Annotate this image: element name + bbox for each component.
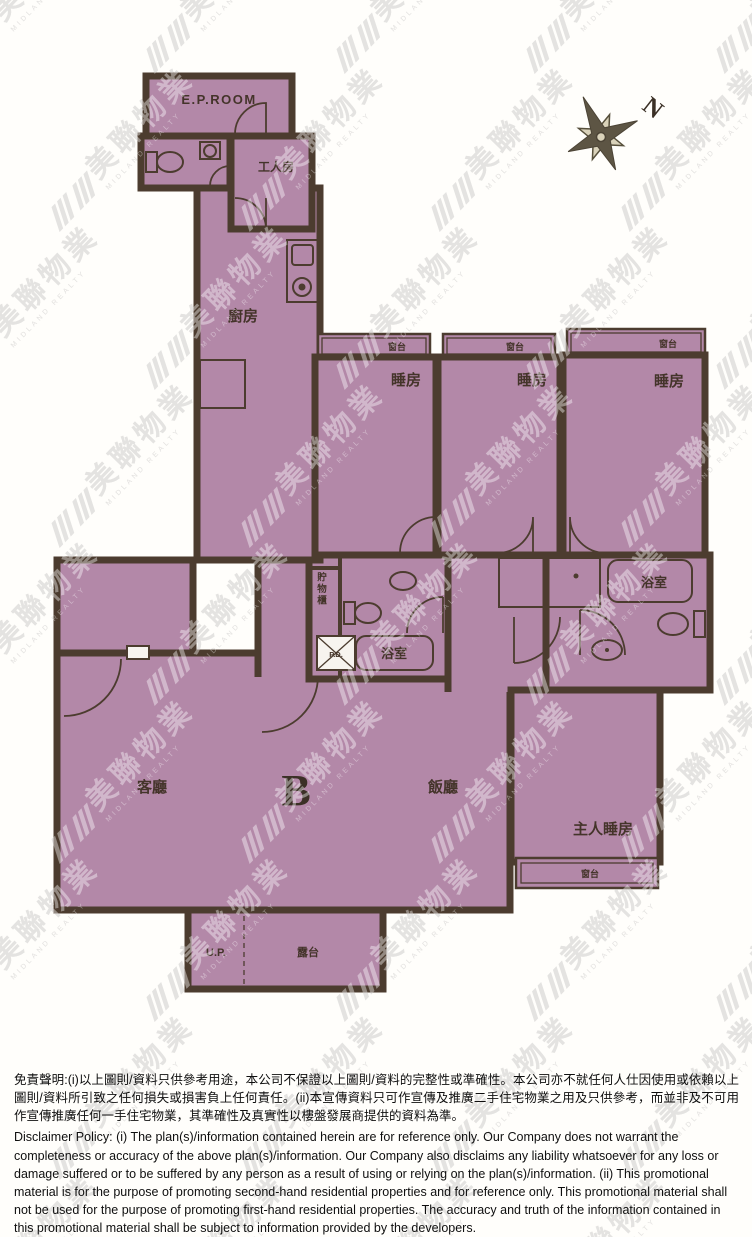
label-storage: 貯物櫃	[313, 572, 327, 607]
room-bedroom-3	[563, 329, 705, 555]
label-balcony: 露台	[297, 945, 319, 959]
label-maid-room: 工人房	[258, 159, 294, 174]
compass-north-label: N	[637, 92, 668, 124]
label-bay-window-3: 窗台	[659, 338, 677, 349]
room-bedroom-2	[438, 334, 560, 555]
room-bathroom-2	[546, 555, 710, 690]
room-toilet-small	[141, 136, 230, 188]
label-bay-window-master: 窗台	[581, 868, 599, 879]
label-bay-window-1: 窗台	[388, 341, 406, 352]
room-hallway	[448, 555, 546, 692]
watermark-text-zh: 美聯物業	[746, 1169, 752, 1237]
floor-plan-drawing: N E.P.ROOM 工人房 廚房 睡房 睡房 睡房 窗台 窗台 窗台 窗台 浴…	[0, 0, 752, 1060]
label-bedroom-1: 睡房	[391, 371, 421, 389]
label-kitchen: 廚房	[228, 307, 258, 325]
label-bathroom-2: 浴室	[641, 575, 667, 590]
label-living-room: 客廳	[136, 778, 167, 796]
compass-icon: N	[550, 81, 668, 185]
label-bedroom-3: 睡房	[654, 372, 684, 390]
watermark-text-zh: 美聯物業	[746, 1169, 752, 1237]
floor-plan-page: 美聯物業MIDLAND REALTY美聯物業MIDLAND REALTY美聯物業…	[0, 0, 752, 1237]
room-maid	[231, 136, 312, 229]
label-master-bedroom: 主人睡房	[573, 820, 633, 838]
room-kitchen	[197, 188, 320, 560]
wall-step	[127, 646, 149, 659]
label-dining-room: 飯廳	[427, 778, 458, 796]
disclaimer-block: 免責聲明:(i)以上圖則/資料只供參考用途，本公司不保證以上圖則/資料的完整性或…	[14, 1071, 739, 1237]
label-bathroom-1: 浴室	[381, 646, 407, 661]
label-bay-window-2: 窗台	[506, 341, 524, 352]
label-unit: B	[281, 766, 310, 815]
disclaimer-chinese: 免責聲明:(i)以上圖則/資料只供參考用途，本公司不保證以上圖則/資料的完整性或…	[14, 1071, 739, 1125]
room-master-bedroom	[511, 690, 660, 888]
label-utility-platform: U.P.	[206, 947, 226, 959]
disclaimer-english: Disclaimer Policy: (i) The plan(s)/infor…	[14, 1128, 739, 1237]
label-pipe-duct: P.D.	[329, 650, 343, 659]
room-foyer	[57, 560, 193, 659]
label-ep-room: E.P.ROOM	[181, 92, 256, 107]
label-bedroom-2: 睡房	[517, 371, 547, 389]
